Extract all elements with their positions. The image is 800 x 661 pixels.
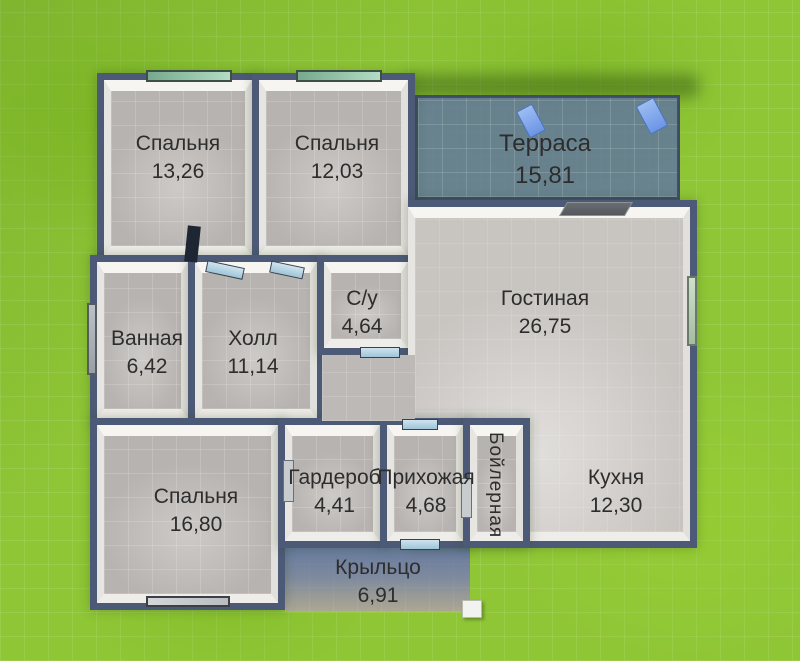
wc-door-icon[interactable] (360, 347, 400, 358)
room-name: Прихожая (377, 466, 474, 489)
room-name: Терраса (499, 130, 591, 157)
room-area: 16,80 (126, 511, 266, 539)
porch-step[interactable] (462, 600, 482, 618)
floor-plan-scene: Спальня 13,26 Спальня 12,03 Терраса 15,8… (0, 0, 800, 661)
room-area: 26,75 (470, 313, 620, 341)
front-door-icon[interactable] (400, 539, 440, 550)
room-area: 4,68 (371, 492, 481, 520)
room-area: 4,64 (302, 313, 422, 341)
living-window-icon[interactable] (687, 276, 697, 346)
label-kitchen: Кухня 12,30 (546, 464, 686, 519)
room-name: Ванная (111, 327, 183, 350)
room-name: Холл (228, 327, 278, 350)
label-bedroom-2: Спальня 12,03 (267, 130, 407, 185)
label-porch: Крыльцо 6,91 (308, 554, 448, 609)
room-area: 13,26 (108, 158, 248, 186)
room-name: Гостиная (501, 287, 589, 310)
room-name: Спальня (136, 132, 220, 155)
room-area: 6,91 (308, 582, 448, 610)
room-name: Спальня (154, 485, 238, 508)
terrace-chair-icon[interactable] (636, 97, 669, 135)
room-name: Гардероб (288, 466, 380, 489)
room-name: С/у (346, 287, 378, 310)
room-area: 11,14 (183, 353, 323, 381)
label-living-room: Гостиная 26,75 (470, 285, 620, 340)
room-name: Спальня (295, 132, 379, 155)
room-name: Крыльцо (335, 556, 421, 579)
room-name: Кухня (588, 466, 644, 489)
entry-hall-door-icon[interactable] (402, 419, 438, 430)
room-name: Бойлерная (485, 432, 506, 538)
label-terrace: Терраса 15,81 (465, 128, 625, 191)
open-floor-connector (322, 355, 415, 421)
label-bedroom-3: Спальня 16,80 (126, 483, 266, 538)
room-area: 12,30 (546, 492, 686, 520)
label-boiler-room: Бойлерная (486, 432, 505, 537)
bedroom1-window-icon[interactable] (146, 70, 232, 82)
bedroom3-window-icon[interactable] (146, 596, 230, 607)
label-bedroom-1: Спальня 13,26 (108, 130, 248, 185)
bedroom2-window-icon[interactable] (296, 70, 382, 82)
room-area: 15,81 (465, 160, 625, 192)
label-entry-hall: Прихожая 4,68 (371, 464, 481, 519)
label-wc: С/у 4,64 (302, 285, 422, 340)
ceiling-vent-icon[interactable] (559, 202, 633, 216)
room-area: 12,03 (267, 158, 407, 186)
